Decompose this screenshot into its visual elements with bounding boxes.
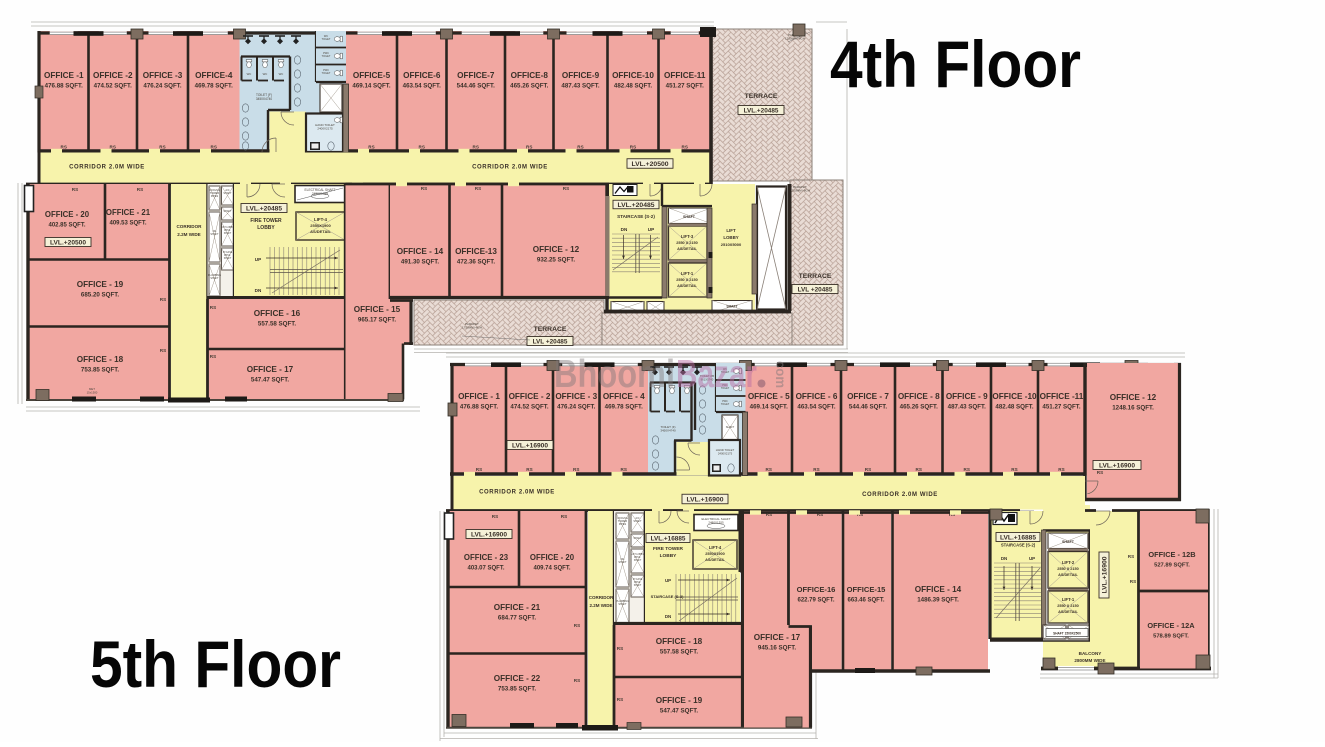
svg-text:SHAFT: SHAFT xyxy=(224,257,232,260)
svg-text:451.27 SQFT.: 451.27 SQFT. xyxy=(1042,404,1080,411)
svg-text:SHAFT: SHAFT xyxy=(618,561,627,564)
svg-text:OFFICE - 19: OFFICE - 19 xyxy=(77,280,124,289)
svg-text:2550X1900: 2550X1900 xyxy=(310,223,331,228)
svg-text:RS: RS xyxy=(475,186,481,191)
svg-text:OFFICE - 17: OFFICE - 17 xyxy=(247,365,294,374)
svg-text:CORRIDOR 2.0M WIDE: CORRIDOR 2.0M WIDE xyxy=(479,490,555,496)
svg-text:LVL.+20500: LVL.+20500 xyxy=(631,161,668,168)
svg-text:2.2M WIDE: 2.2M WIDE xyxy=(589,603,612,608)
svg-text:622.79 SQFT.: 622.79 SQFT. xyxy=(797,598,834,604)
svg-text:2510X5000: 2510X5000 xyxy=(721,242,742,247)
svg-text:469.78 SQFT.: 469.78 SQFT. xyxy=(605,404,643,411)
svg-text:472.36 SQFT.: 472.36 SQFT. xyxy=(457,259,495,266)
svg-text:469.14 SQFT.: 469.14 SQFT. xyxy=(352,83,390,90)
svg-text:OFFICE - 12A: OFFICE - 12A xyxy=(1147,621,1195,630)
svg-text:WC: WC xyxy=(279,72,284,76)
svg-text:OFFICE -1: OFFICE -1 xyxy=(44,71,84,80)
svg-text:RS: RS xyxy=(964,467,970,472)
svg-text:OFFICE - 2: OFFICE - 2 xyxy=(509,392,551,401)
svg-text:476.24 SQFT.: 476.24 SQFT. xyxy=(143,83,181,90)
svg-text:OFFICE -3: OFFICE -3 xyxy=(143,71,183,80)
svg-text:TOILET: TOILET xyxy=(322,38,331,41)
svg-text:663.46 SQFT.: 663.46 SQFT. xyxy=(847,598,884,604)
svg-text:491.30 SQFT.: 491.30 SQFT. xyxy=(401,259,439,266)
svg-text:403.07 SQFT.: 403.07 SQFT. xyxy=(467,566,504,572)
svg-text:RS: RS xyxy=(526,144,532,149)
svg-text:RS: RS xyxy=(573,467,579,472)
svg-text:LIFT LOBBY: LIFT LOBBY xyxy=(221,227,234,229)
svg-text:SHAFT: SHAFT xyxy=(223,210,232,213)
svg-text:TOILET: TOILET xyxy=(721,403,730,406)
svg-text:LVL.+16900: LVL.+16900 xyxy=(1099,462,1135,469)
svg-text:OFFICE-11: OFFICE-11 xyxy=(664,71,706,80)
svg-text:OFFICE -2: OFFICE -2 xyxy=(93,71,133,80)
svg-text:LVL +20485: LVL +20485 xyxy=(798,286,833,293)
svg-text:409.53 SQFT.: 409.53 SQFT. xyxy=(109,221,146,227)
svg-text:PRSZ.: PRSZ. xyxy=(634,582,641,584)
svg-text:OFFICE - 12: OFFICE - 12 xyxy=(533,245,580,254)
svg-text:RS: RS xyxy=(621,467,627,472)
svg-text:2550 X 2150: 2550 X 2150 xyxy=(1057,567,1079,571)
svg-text:AS/DETAIL: AS/DETAIL xyxy=(310,229,331,234)
svg-text:RS: RS xyxy=(211,144,217,149)
svg-text:OFFICE - 9: OFFICE - 9 xyxy=(946,392,988,401)
svg-text:965.17 SQFT.: 965.17 SQFT. xyxy=(358,317,396,324)
svg-text:SHAFT: SHAFT xyxy=(633,537,642,540)
svg-text:CORRIDOR 2.0M WIDE: CORRIDOR 2.0M WIDE xyxy=(472,165,548,171)
svg-text:487.43 SQFT.: 487.43 SQFT. xyxy=(561,83,599,90)
svg-text:SHAFT: SHAFT xyxy=(224,232,232,235)
svg-text:SHAFT: SHAFT xyxy=(223,192,232,195)
svg-text:OFFICE - 14: OFFICE - 14 xyxy=(915,585,962,594)
svg-text:SHAFT: SHAFT xyxy=(634,559,642,562)
svg-text:684.77 SQFT.: 684.77 SQFT. xyxy=(498,615,536,622)
svg-text:753.85 SQFT.: 753.85 SQFT. xyxy=(81,367,119,374)
svg-text:STAIRCASE (S-3): STAIRCASE (S-3) xyxy=(651,594,684,599)
svg-text:557.58 SQFT.: 557.58 SQFT. xyxy=(660,649,698,656)
svg-text:RS: RS xyxy=(368,144,374,149)
svg-text:RS: RS xyxy=(577,144,583,149)
svg-text:LVL.+20500: LVL.+20500 xyxy=(50,239,86,246)
svg-text:TOILET: TOILET xyxy=(322,72,331,75)
svg-text:2800MM WIDE: 2800MM WIDE xyxy=(1074,658,1105,663)
svg-text:2.2M WIDE: 2.2M WIDE xyxy=(177,232,200,237)
svg-text:UP: UP xyxy=(255,257,261,262)
svg-text:OFFICE - 20: OFFICE - 20 xyxy=(45,210,90,219)
svg-text:OFFICE - 17: OFFICE - 17 xyxy=(754,633,801,642)
svg-text:932.25 SQFT.: 932.25 SQFT. xyxy=(537,257,575,264)
svg-text:RS: RS xyxy=(1128,554,1134,559)
svg-text:RS: RS xyxy=(160,297,166,302)
svg-text:CORRIDOR: CORRIDOR xyxy=(176,224,202,229)
svg-text:SHAFT: SHAFT xyxy=(618,603,627,606)
svg-text:2550 X 2150: 2550 X 2150 xyxy=(676,278,698,282)
svg-text:578.89 SQFT.: 578.89 SQFT. xyxy=(1153,634,1189,640)
svg-text:1248.16 SQFT.: 1248.16 SQFT. xyxy=(1112,405,1154,412)
svg-text:OFFICE - 18: OFFICE - 18 xyxy=(77,355,124,364)
svg-text:RS: RS xyxy=(865,467,871,472)
svg-text:2400X2175: 2400X2175 xyxy=(718,451,733,455)
svg-text:474.52 SQFT.: 474.52 SQFT. xyxy=(510,404,548,411)
svg-text:3450X4740: 3450X4740 xyxy=(256,97,273,101)
svg-text:RS: RS xyxy=(1058,467,1064,472)
svg-text:544.46 SQFT.: 544.46 SQFT. xyxy=(457,83,495,90)
svg-text:OFFICE-9: OFFICE-9 xyxy=(562,71,600,80)
svg-text:OFFICE-5: OFFICE-5 xyxy=(353,71,391,80)
svg-text:469.14 SQFT.: 469.14 SQFT. xyxy=(750,404,788,411)
svg-text:PIPES: PIPES xyxy=(211,195,219,198)
svg-text:STAIRCASE (S-2): STAIRCASE (S-2) xyxy=(1001,543,1036,548)
svg-text:PRSZ.: PRSZ. xyxy=(224,255,231,257)
svg-text:CORRIDOR: CORRIDOR xyxy=(589,595,614,600)
svg-text:SHAFT: SHAFT xyxy=(210,233,219,236)
svg-text:LIFT: LIFT xyxy=(726,228,736,233)
svg-text:UP: UP xyxy=(648,227,654,232)
svg-text:LVL.+16900: LVL.+16900 xyxy=(471,531,507,538)
svg-text:RS: RS xyxy=(574,623,580,628)
svg-text:2400X2175: 2400X2175 xyxy=(317,127,333,131)
svg-text:402.85 SQFT.: 402.85 SQFT. xyxy=(48,223,85,229)
svg-text:OFFICE - 20: OFFICE - 20 xyxy=(530,553,575,562)
svg-text:RS: RS xyxy=(492,514,498,519)
svg-text:5th Floor: 5th Floor xyxy=(90,627,341,701)
svg-text:RS: RS xyxy=(421,186,427,191)
svg-text:SHAFT: SHAFT xyxy=(726,425,735,429)
svg-text:547.47 SQFT.: 547.47 SQFT. xyxy=(251,377,289,384)
svg-text:OFFICE - 19: OFFICE - 19 xyxy=(656,696,703,705)
svg-text:LVL.+20485: LVL.+20485 xyxy=(617,202,654,209)
svg-text:STAIRCASE (S-2): STAIRCASE (S-2) xyxy=(617,214,655,219)
svg-text:AS/DETAIL: AS/DETAIL xyxy=(677,284,697,288)
svg-text:SHAFT: SHAFT xyxy=(210,277,219,280)
svg-text:AS/DETAIL: AS/DETAIL xyxy=(677,247,697,251)
svg-text:RS: RS xyxy=(682,144,688,149)
svg-text:DN: DN xyxy=(1001,556,1007,561)
svg-text:OFFICE-15: OFFICE-15 xyxy=(847,585,887,594)
svg-text:463.54 SQFT.: 463.54 SQFT. xyxy=(403,83,441,90)
svg-text:OFFICE-6: OFFICE-6 xyxy=(403,71,441,80)
svg-text:4th Floor: 4th Floor xyxy=(830,27,1081,101)
svg-text:TERRACE: TERRACE xyxy=(534,326,567,333)
svg-text:LIFT LOBBY: LIFT LOBBY xyxy=(631,554,644,556)
svg-text:LVL.+16885: LVL.+16885 xyxy=(1000,534,1036,541)
svg-text:LIFT-2: LIFT-2 xyxy=(1062,560,1075,565)
svg-text:LOBBY: LOBBY xyxy=(257,225,275,231)
svg-text:SHAFT: SHAFT xyxy=(634,584,642,587)
svg-text:OFFICE - 7: OFFICE - 7 xyxy=(847,392,889,401)
svg-text:SHAFT: SHAFT xyxy=(633,520,642,523)
svg-text:RS: RS xyxy=(210,305,216,310)
svg-text:FIRE TOWER: FIRE TOWER xyxy=(250,218,282,224)
svg-text:AS/DETAIL: AS/DETAIL xyxy=(1058,573,1078,577)
svg-text:482.48 SQFT.: 482.48 SQFT. xyxy=(614,83,652,90)
svg-text:RS: RS xyxy=(526,467,532,472)
svg-text:Bazar: Bazar xyxy=(676,353,757,396)
svg-text:UP: UP xyxy=(665,578,671,583)
svg-text:RS: RS xyxy=(1011,467,1017,472)
svg-text:WC: WC xyxy=(263,72,268,76)
svg-text:1200MM HIGH: 1200MM HIGH xyxy=(790,189,810,193)
svg-text:LVL.+20485: LVL.+20485 xyxy=(246,205,282,212)
svg-text:WC: WC xyxy=(247,72,252,76)
svg-text:SHAFT 1500X2500: SHAFT 1500X2500 xyxy=(1053,632,1081,636)
svg-text:476.88 SQFT.: 476.88 SQFT. xyxy=(45,83,83,90)
svg-text:LIFT-3: LIFT-3 xyxy=(681,234,694,239)
svg-text:409.74 SQFT.: 409.74 SQFT. xyxy=(533,566,570,572)
svg-text:RS: RS xyxy=(561,514,567,519)
svg-text:OFFICE-10: OFFICE-10 xyxy=(612,71,654,80)
svg-text:OFFICE - 12B: OFFICE - 12B xyxy=(1148,550,1195,559)
svg-text:547.47 SQFT.: 547.47 SQFT. xyxy=(660,708,698,715)
svg-text:SHAFT: SHAFT xyxy=(1062,540,1075,544)
svg-text:476.24 SQFT.: 476.24 SQFT. xyxy=(557,404,595,411)
svg-text:OFFICE - 18: OFFICE - 18 xyxy=(656,637,703,646)
svg-text:465.26 SQFT.: 465.26 SQFT. xyxy=(900,404,938,411)
svg-text:UP: UP xyxy=(1029,556,1035,561)
svg-text:1750MM HIGH: 1750MM HIGH xyxy=(462,326,482,330)
svg-text:RS: RS xyxy=(110,144,116,149)
svg-text:OFFICE-7: OFFICE-7 xyxy=(457,71,495,80)
svg-text:753.85 SQFT.: 753.85 SQFT. xyxy=(498,686,536,693)
svg-text:474.52 SQFT.: 474.52 SQFT. xyxy=(94,83,132,90)
svg-text:LVL.+16900: LVL.+16900 xyxy=(686,496,723,503)
svg-text:RS: RS xyxy=(617,697,623,702)
svg-text:LOBBY: LOBBY xyxy=(660,553,678,559)
svg-text:685.20 SQFT.: 685.20 SQFT. xyxy=(81,292,119,299)
svg-text:LVL +20485: LVL +20485 xyxy=(533,338,568,345)
svg-text:RS: RS xyxy=(210,354,216,359)
svg-text:DN: DN xyxy=(255,288,262,293)
svg-text:BALCONY: BALCONY xyxy=(1079,651,1102,656)
svg-text:com: com xyxy=(773,361,789,388)
svg-text:2550 X 2150: 2550 X 2150 xyxy=(1057,604,1079,608)
svg-text:RS: RS xyxy=(563,186,569,191)
svg-text:RS: RS xyxy=(476,467,482,472)
svg-text:OFFICE - 16: OFFICE - 16 xyxy=(254,309,301,318)
svg-text:OFFICE - 21: OFFICE - 21 xyxy=(494,603,541,612)
svg-text:527.89 SQFT.: 527.89 SQFT. xyxy=(1154,563,1190,569)
svg-text:3450X4740: 3450X4740 xyxy=(660,429,676,433)
svg-text:RS: RS xyxy=(1130,579,1136,584)
svg-text:LOBBY: LOBBY xyxy=(723,235,738,240)
svg-text:RS: RS xyxy=(617,646,623,651)
svg-text:469.78 SQFT.: 469.78 SQFT. xyxy=(195,83,233,90)
svg-text:LVL.+20485: LVL.+20485 xyxy=(744,107,779,114)
svg-text:PRSZ.: PRSZ. xyxy=(634,557,641,559)
svg-text:476.88 SQFT.: 476.88 SQFT. xyxy=(460,404,498,411)
svg-text:945.16 SQFT.: 945.16 SQFT. xyxy=(758,645,796,652)
svg-text:LIFT-4: LIFT-4 xyxy=(709,545,722,550)
svg-text:OFFICE - 23: OFFICE - 23 xyxy=(464,553,509,562)
svg-text:LVL.+16900: LVL.+16900 xyxy=(1101,556,1108,593)
svg-text:OFFICE - 14: OFFICE - 14 xyxy=(397,247,444,256)
svg-text:LVL.+16900: LVL.+16900 xyxy=(512,442,548,449)
svg-text:OFFICE - 21: OFFICE - 21 xyxy=(106,208,151,217)
svg-text:15x1500: 15x1500 xyxy=(87,390,98,394)
svg-text:PIPES: PIPES xyxy=(619,523,627,526)
svg-text:AS/DETAIL: AS/DETAIL xyxy=(705,558,725,562)
svg-text:RS: RS xyxy=(1097,470,1103,475)
svg-text:DN: DN xyxy=(665,614,671,619)
svg-text:RS: RS xyxy=(473,144,479,149)
svg-text:487.43 SQFT.: 487.43 SQFT. xyxy=(948,404,986,411)
svg-text:RS: RS xyxy=(159,144,165,149)
svg-text:AS/DETAIL: AS/DETAIL xyxy=(1058,610,1078,614)
svg-text:SHAFT: SHAFT xyxy=(726,305,738,309)
svg-text:482.48 SQFT.: 482.48 SQFT. xyxy=(995,404,1033,411)
svg-text:451.27 SQFT.: 451.27 SQFT. xyxy=(666,83,704,90)
svg-text:OFFICE - 15: OFFICE - 15 xyxy=(354,305,401,314)
svg-text:LIFT-1: LIFT-1 xyxy=(681,271,694,276)
svg-text:PRSZ.: PRSZ. xyxy=(224,230,231,232)
svg-text:SHAFT: SHAFT xyxy=(683,215,696,219)
svg-text:OFFICE -11: OFFICE -11 xyxy=(1040,392,1084,401)
svg-text:RS: RS xyxy=(61,144,67,149)
svg-text:ST.CASE: ST.CASE xyxy=(223,251,233,254)
svg-text:OFFICE - 8: OFFICE - 8 xyxy=(898,392,940,401)
svg-text:RS: RS xyxy=(419,144,425,149)
svg-text:1486.39 SQFT.: 1486.39 SQFT. xyxy=(917,597,959,604)
svg-text:RS: RS xyxy=(160,348,166,353)
svg-text:544.46 SQFT.: 544.46 SQFT. xyxy=(849,404,887,411)
svg-text:RS: RS xyxy=(766,467,772,472)
svg-text:DN: DN xyxy=(621,227,628,232)
svg-text:2550X1900: 2550X1900 xyxy=(705,552,724,556)
svg-text:RS: RS xyxy=(137,187,143,192)
svg-text:OFFICE -10: OFFICE -10 xyxy=(992,392,1037,401)
svg-text:ST.CASE: ST.CASE xyxy=(633,578,643,581)
svg-text:Bhoomi: Bhoomi xyxy=(554,353,675,396)
svg-text:557.58 SQFT.: 557.58 SQFT. xyxy=(258,321,296,328)
svg-text:OFFICE-16: OFFICE-16 xyxy=(797,585,836,594)
svg-text:463.54 SQFT.: 463.54 SQFT. xyxy=(797,404,835,411)
svg-text:FIRE TOWER: FIRE TOWER xyxy=(653,546,684,552)
svg-text:OFFICE - 12: OFFICE - 12 xyxy=(1110,393,1157,402)
svg-text:LIFT-1: LIFT-1 xyxy=(1062,597,1075,602)
svg-text:OFFICE - 1: OFFICE - 1 xyxy=(458,392,500,401)
svg-text:OFFICE - 22: OFFICE - 22 xyxy=(494,674,541,683)
svg-text:LVL.+16885: LVL.+16885 xyxy=(651,535,686,542)
svg-text:TERRACE: TERRACE xyxy=(745,93,778,100)
svg-text:2550 X 2150: 2550 X 2150 xyxy=(676,241,698,245)
svg-text:CORRIDOR 2.0M WIDE: CORRIDOR 2.0M WIDE xyxy=(69,165,145,171)
svg-text:OFFICE-4: OFFICE-4 xyxy=(195,71,233,80)
svg-text:RS: RS xyxy=(916,467,922,472)
svg-text:RS: RS xyxy=(630,144,636,149)
svg-text:LIFT-4: LIFT-4 xyxy=(314,217,327,222)
svg-text:TOILET: TOILET xyxy=(322,55,331,58)
svg-text:TERRACE: TERRACE xyxy=(799,273,832,280)
svg-text:465.26 SQFT.: 465.26 SQFT. xyxy=(510,83,548,90)
svg-text:OFFICE-13: OFFICE-13 xyxy=(455,247,497,256)
svg-text:RS: RS xyxy=(72,187,78,192)
svg-text:RS: RS xyxy=(574,678,580,683)
svg-text:OFFICE-8: OFFICE-8 xyxy=(511,71,549,80)
svg-text:RS: RS xyxy=(813,467,819,472)
svg-text:OFFICE - 6: OFFICE - 6 xyxy=(796,392,838,401)
svg-text:CORRIDOR 2.0M WIDE: CORRIDOR 2.0M WIDE xyxy=(862,492,938,498)
